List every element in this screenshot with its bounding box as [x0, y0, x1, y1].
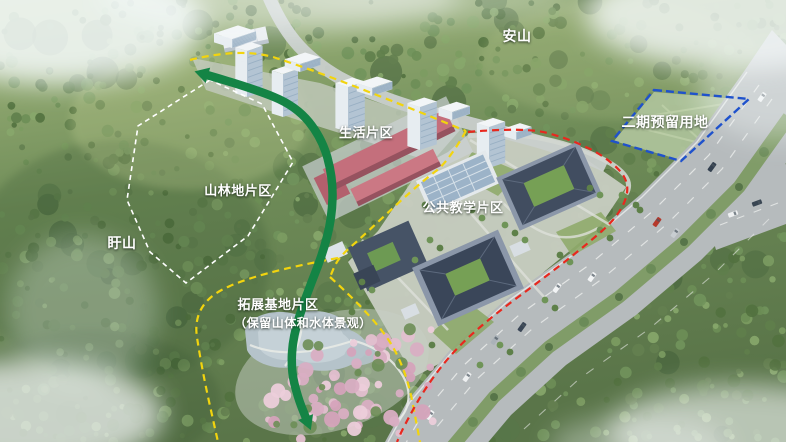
label-xushan: 盱山: [108, 235, 137, 251]
label-phase2: 二期预留用地: [622, 114, 709, 130]
label-living-zone: 生活片区: [339, 125, 393, 140]
label-forest-zone: 山林地片区: [204, 183, 272, 198]
label-expansion-note: （保留山体和水体景观）: [234, 315, 372, 330]
label-anshan: 安山: [503, 28, 532, 44]
aerial-view: 安山 二期预留用地 生活片区 山林地片区 盱山 公共教学片区 拓展基地片区 （保…: [0, 0, 786, 442]
label-expansion-zone: 拓展基地片区: [237, 297, 318, 312]
label-teaching-zone: 公共教学片区: [422, 200, 503, 215]
site-plan-rendering: 安山 二期预留用地 生活片区 山林地片区 盱山 公共教学片区 拓展基地片区 （保…: [0, 0, 786, 442]
